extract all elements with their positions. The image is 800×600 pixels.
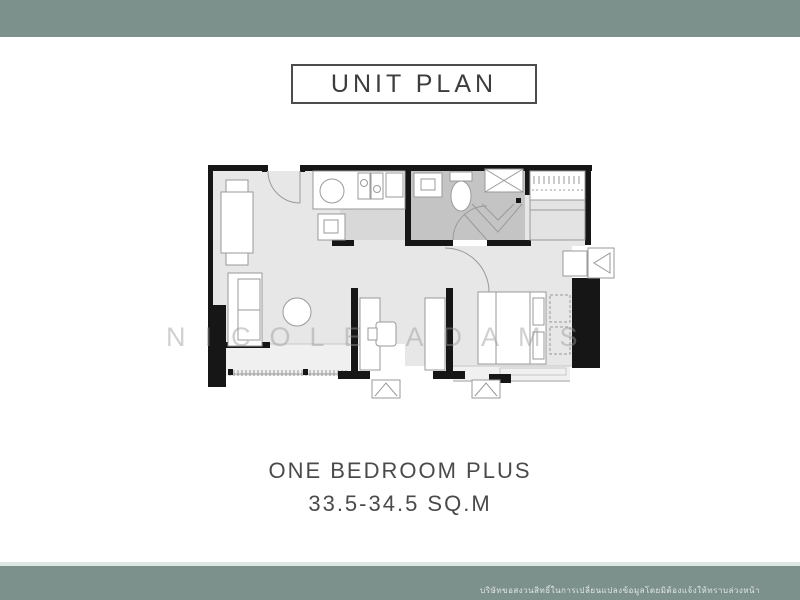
- toilet-icon: [450, 172, 472, 211]
- cabinet: [530, 200, 585, 240]
- bed: [478, 292, 546, 364]
- sliding-door-panel: [425, 298, 445, 370]
- ac-unit-icon: [563, 248, 614, 278]
- window-ledge: [372, 380, 400, 398]
- dining-table: [221, 180, 253, 265]
- sofa: [228, 273, 262, 346]
- page-title: UNIT PLAN: [331, 70, 497, 99]
- unit-plan-title-box: UNIT PLAN: [291, 64, 537, 104]
- unit-type-label: ONE BEDROOM PLUS: [0, 458, 800, 484]
- coffee-table: [283, 298, 311, 326]
- bathroom-sink-icon: [414, 173, 442, 197]
- top-brand-band: [0, 0, 800, 37]
- wardrobe: [530, 171, 585, 240]
- footer-disclaimer: บริษัทขอสงวนสิทธิ์ในการเปลี่ยนแปลงข้อมูล…: [480, 584, 760, 597]
- floor-plan-drawing: [200, 152, 620, 402]
- pillow-icon: [533, 298, 544, 325]
- unit-area-label: 33.5-34.5 SQ.M: [0, 491, 800, 517]
- refrigerator-icon: [318, 214, 345, 240]
- window-ledge: [472, 380, 500, 398]
- desk: [376, 322, 396, 346]
- service-shaft: [485, 169, 523, 192]
- stove-icon: [358, 173, 383, 199]
- floor-plan: [200, 152, 620, 402]
- chair: [368, 328, 377, 340]
- pillow-icon: [533, 332, 544, 359]
